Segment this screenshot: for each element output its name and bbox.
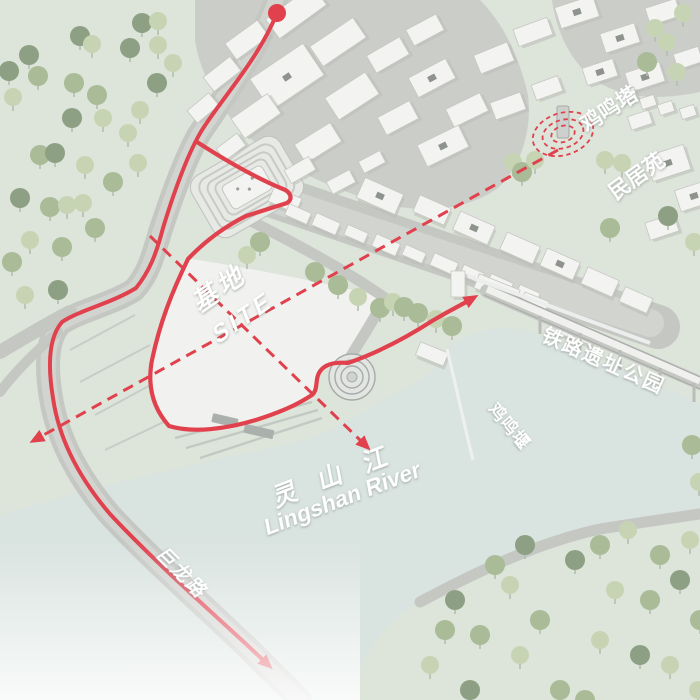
tree	[550, 680, 570, 700]
tree	[460, 680, 480, 700]
edge-fade	[0, 540, 360, 700]
site-plan-map: 鸡鸣塔 民居苑 铁路遗址公园 鸡鸣堰 基地 SITE 灵 山 江 Lingsha…	[0, 0, 700, 700]
building	[451, 271, 468, 300]
map-canvas: 鸡鸣塔 民居苑 铁路遗址公园 鸡鸣堰 基地 SITE 灵 山 江 Lingsha…	[0, 0, 700, 700]
route-start-dot	[268, 4, 286, 22]
